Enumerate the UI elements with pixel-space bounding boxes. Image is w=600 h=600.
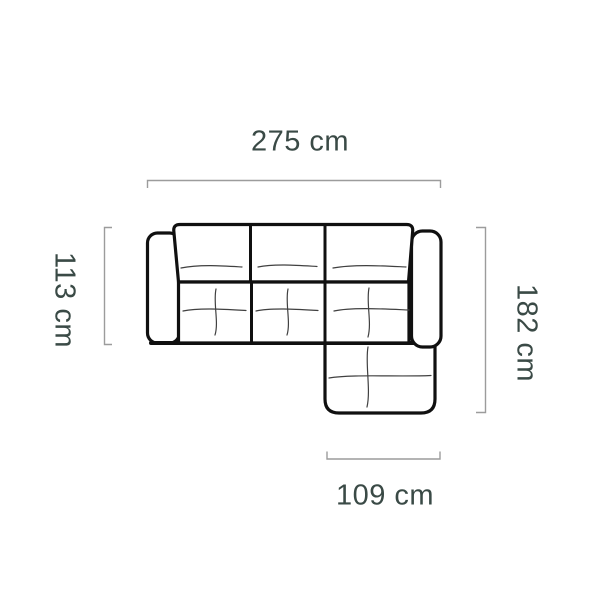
dimension-label-bottom-chaise-width: 109 cm — [336, 480, 434, 513]
right-armrest — [412, 231, 442, 347]
backrest — [174, 225, 413, 283]
right-dimension-bracket — [476, 228, 486, 413]
top-dimension-bracket — [148, 181, 441, 189]
dimension-label-right-length: 182 cm — [510, 284, 543, 382]
seat-block — [179, 282, 410, 343]
dimension-label-left-depth: 113 cm — [48, 252, 81, 348]
dimension-label-top-width: 275 cm — [251, 126, 349, 159]
left-dimension-bracket — [105, 228, 113, 345]
bottom-dimension-bracket — [327, 452, 440, 460]
sofa-dimension-diagram: 275 cm 113 cm 182 cm 109 cm — [0, 0, 600, 600]
